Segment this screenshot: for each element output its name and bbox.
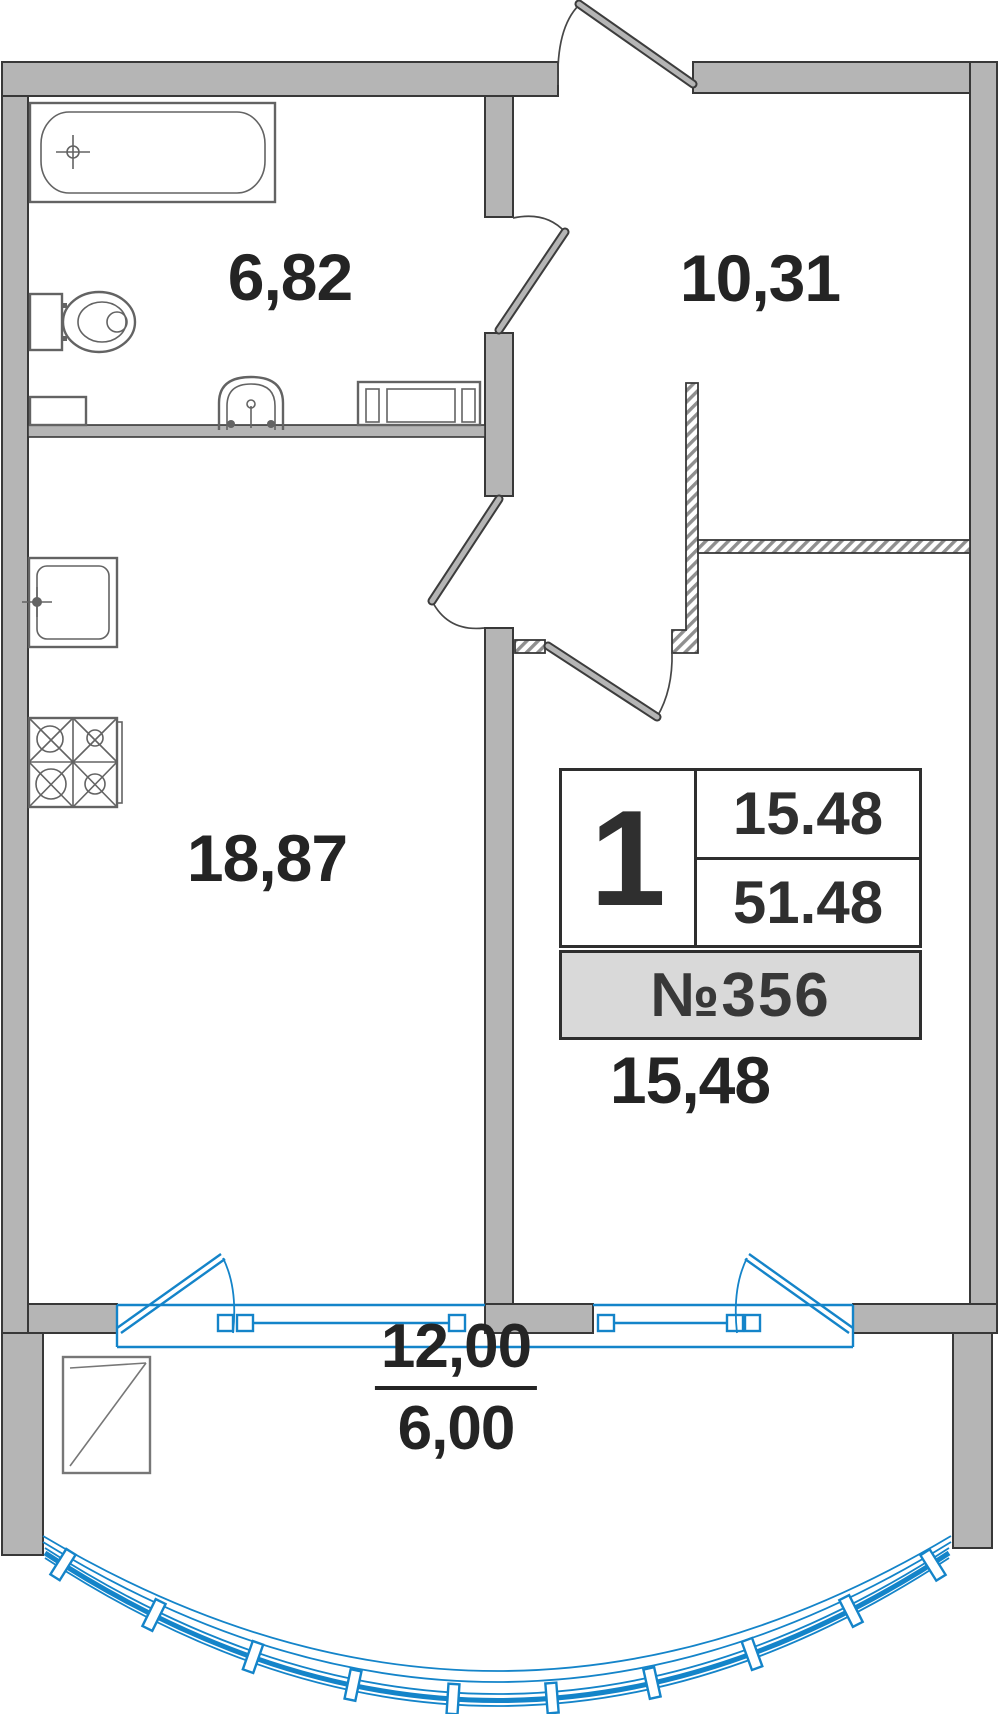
unit-living-area: 15.48 — [697, 771, 919, 860]
wall-mid-segment — [485, 333, 513, 496]
wall-bathroom-bottom — [28, 425, 485, 437]
wall-bottom-right-band — [853, 1304, 997, 1333]
unit-card: 1 15.48 51.48 №356 — [559, 768, 922, 1040]
kitchen-sink — [22, 558, 117, 647]
partition-horizontal — [698, 540, 970, 553]
glazing-post — [345, 1669, 362, 1701]
floor-plan: 6,82 10,31 18,87 15,48 12,00 6,00 1 15.4… — [0, 0, 1000, 1714]
glazing-post — [142, 1599, 165, 1631]
balcony-door-right — [736, 1254, 853, 1333]
room-label-bedroom: 15,48 — [610, 1047, 770, 1113]
wall-balcony-right — [953, 1333, 992, 1548]
bathroom-door-arc — [513, 216, 565, 232]
bathroom-sink — [219, 377, 283, 430]
balcony-area-reduced: 6,00 — [375, 1398, 537, 1460]
entrance-door-arc — [558, 5, 579, 85]
stove — [29, 718, 122, 807]
balcony-door-left — [117, 1254, 234, 1333]
wall-mid-lower — [485, 628, 513, 1305]
room-label-hallway: 10,31 — [680, 245, 840, 311]
balcony-slab-edge — [43, 1536, 951, 1682]
unit-card-table: 1 15.48 51.48 — [559, 768, 922, 948]
balcony-area-labels: 12,00 6,00 — [375, 1316, 537, 1460]
wall-right — [970, 62, 997, 1304]
room-label-kitchen-living: 18,87 — [187, 825, 347, 891]
glazing-post — [545, 1683, 558, 1714]
toilet — [30, 292, 135, 352]
wall-mid-stub-top — [485, 96, 513, 217]
wall-top-right — [693, 62, 997, 93]
room-label-bathroom: 6,82 — [228, 244, 352, 310]
kitchen-door — [432, 499, 499, 628]
bedroom-window — [598, 1315, 743, 1331]
partition-walls — [515, 383, 970, 653]
partition-stub-corridor — [515, 640, 545, 653]
balcony-hatch-flap — [63, 1357, 150, 1473]
wall-balcony-left — [2, 1333, 43, 1555]
doors — [432, 4, 693, 717]
bathtub — [30, 103, 275, 202]
balcony-area-full: 12,00 — [375, 1316, 537, 1390]
kitchen-door-arc — [432, 601, 484, 628]
wall-top-left — [2, 62, 558, 96]
bedroom-door-arc — [657, 652, 672, 717]
wall-left — [2, 62, 28, 1548]
bedroom-door — [548, 646, 672, 717]
partition-vertical — [672, 383, 698, 653]
glazing-post — [920, 1549, 945, 1580]
kitchen-fixtures — [22, 558, 122, 807]
unit-total-area: 51.48 — [697, 860, 919, 946]
entrance-door — [558, 4, 693, 85]
wall-window-stub-left — [28, 1304, 117, 1333]
unit-number-badge: №356 — [559, 950, 922, 1040]
unit-rooms-count: 1 — [562, 771, 697, 945]
glazing-post — [447, 1684, 460, 1714]
bathroom-door — [499, 216, 565, 330]
bathroom-shelf — [30, 397, 86, 425]
glazing-post — [643, 1667, 660, 1699]
unit-areas: 15.48 51.48 — [697, 771, 919, 945]
washing-machine — [358, 382, 480, 425]
